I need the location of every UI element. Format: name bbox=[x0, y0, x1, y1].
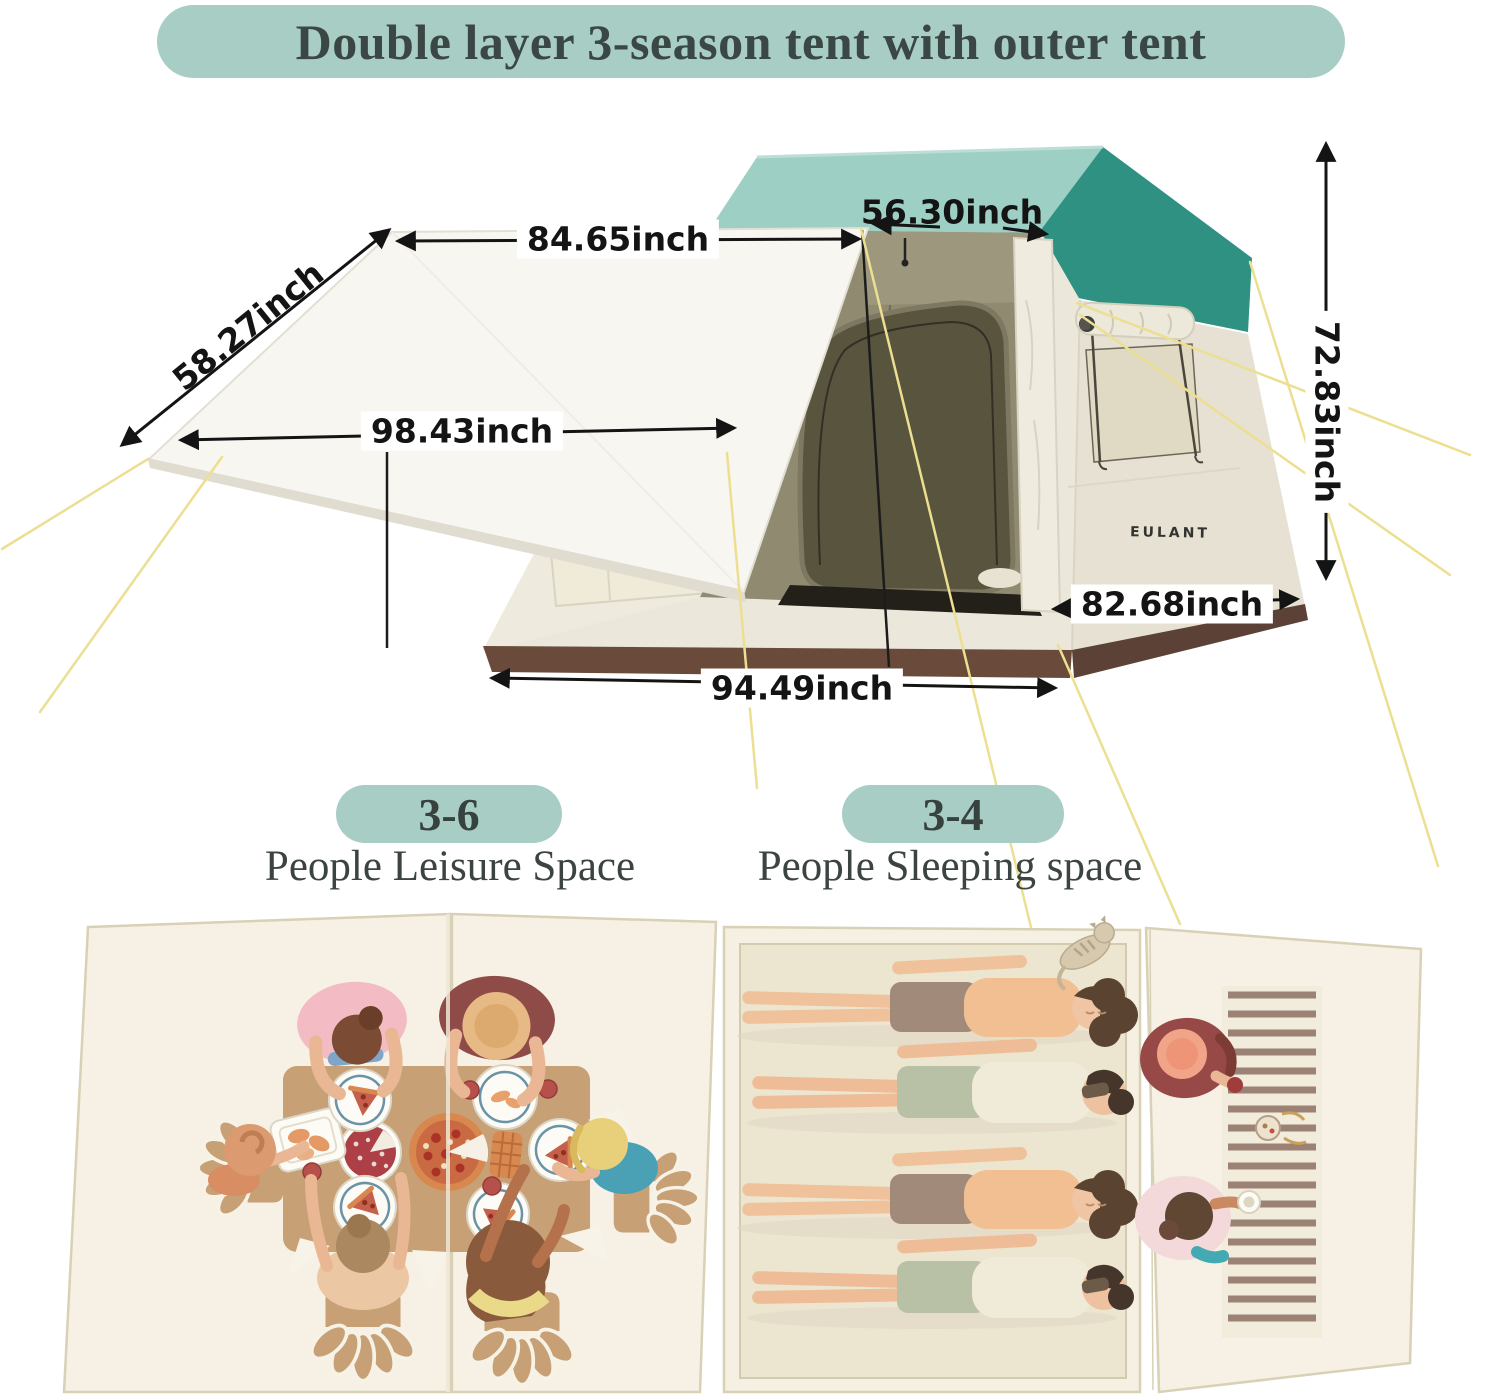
dim-awning-front-width: 98.43inch bbox=[361, 412, 563, 451]
floor-plan bbox=[64, 914, 1421, 1392]
capacity-badge-sleeping: 3-4 bbox=[842, 785, 1064, 843]
page-title: Double layer 3-season tent with outer te… bbox=[296, 13, 1207, 71]
brand-logo: EULANT bbox=[1130, 524, 1210, 541]
capacity-label-leisure: People Leisure Space bbox=[265, 842, 635, 891]
dim-tent-height: 72.83inch bbox=[1306, 311, 1349, 513]
tent-product-infographic: Double layer 3-season tent with outer te… bbox=[0, 0, 1500, 1398]
capacity-value-sleeping: 3-4 bbox=[922, 788, 983, 841]
capacity-label-sleeping: People Sleeping space bbox=[758, 842, 1143, 891]
tent-graphic bbox=[2, 144, 1470, 952]
dim-side-depth: 82.68inch bbox=[1071, 585, 1273, 624]
dim-awning-top-width: 84.65inch bbox=[517, 220, 719, 259]
title-banner: Double layer 3-season tent with outer te… bbox=[157, 5, 1345, 78]
dim-front-width: 94.49inch bbox=[701, 669, 903, 708]
capacity-badge-leisure: 3-6 bbox=[336, 785, 562, 843]
dim-roof-top-width: 56.30inch bbox=[861, 193, 1043, 232]
capacity-value-leisure: 3-6 bbox=[418, 788, 479, 841]
